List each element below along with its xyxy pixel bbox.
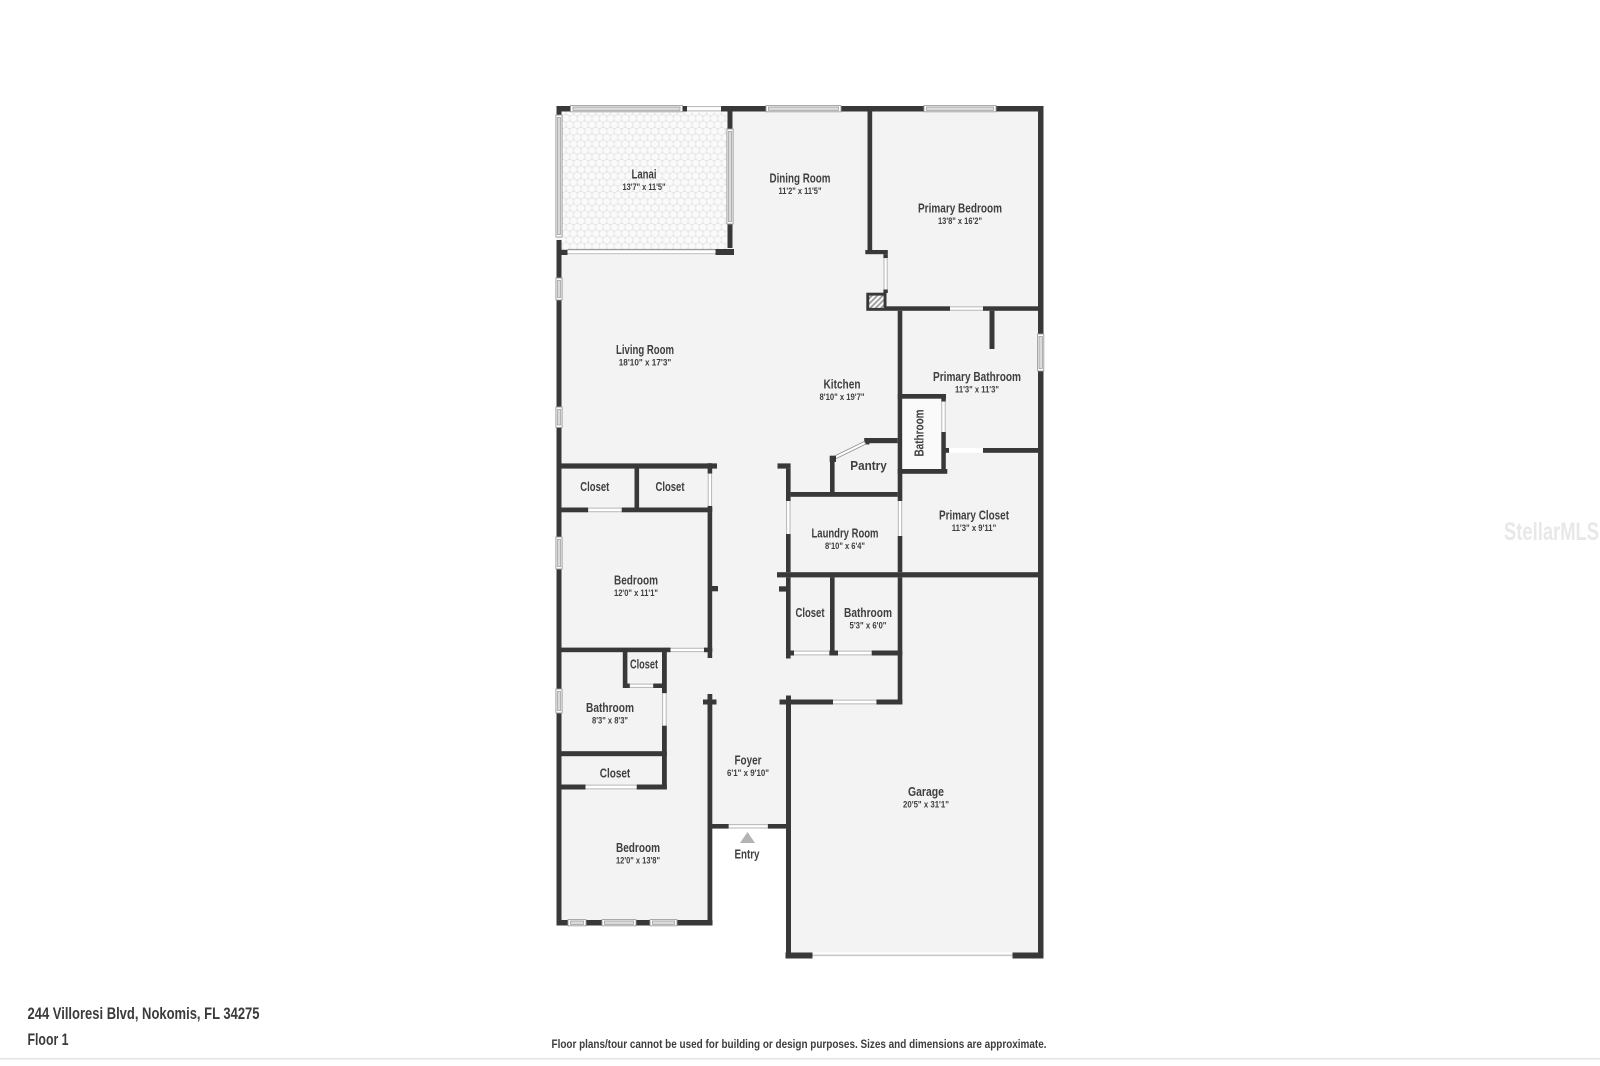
svg-text:12'0" x 11'1": 12'0" x 11'1" (614, 588, 658, 599)
svg-text:Primary Closet: Primary Closet (939, 509, 1010, 523)
svg-text:11'3" x 11'3": 11'3" x 11'3" (955, 385, 999, 396)
svg-text:Closet: Closet (656, 480, 686, 494)
svg-text:Garage: Garage (908, 785, 944, 799)
svg-text:Pantry: Pantry (850, 459, 887, 473)
svg-text:11'3" x 9'11": 11'3" x 9'11" (952, 523, 997, 534)
svg-text:Primary Bedroom: Primary Bedroom (918, 202, 1002, 216)
svg-text:Laundry Room: Laundry Room (812, 527, 879, 541)
svg-text:Closet: Closet (580, 480, 610, 494)
svg-text:Bedroom: Bedroom (614, 574, 658, 588)
svg-text:Bedroom: Bedroom (616, 841, 660, 855)
svg-text:Bathroom: Bathroom (586, 701, 634, 715)
svg-text:Entry: Entry (735, 848, 760, 862)
svg-text:6'1" x 9'10": 6'1" x 9'10" (727, 768, 769, 779)
svg-text:8'10" x 6'4": 8'10" x 6'4" (825, 541, 865, 552)
svg-text:Foyer: Foyer (735, 754, 762, 768)
svg-text:Floor 1: Floor 1 (28, 1031, 69, 1049)
svg-text:Bathroom: Bathroom (844, 606, 892, 620)
svg-text:StellarMLS: StellarMLS (1504, 518, 1599, 546)
svg-text:Dining Room: Dining Room (770, 172, 831, 186)
svg-text:13'7" x 11'5": 13'7" x 11'5" (623, 182, 666, 193)
svg-text:Closet: Closet (796, 606, 826, 620)
svg-text:13'8" x 16'2": 13'8" x 16'2" (938, 216, 982, 227)
svg-text:11'2" x 11'5": 11'2" x 11'5" (779, 186, 822, 197)
svg-text:5'3" x 6'0": 5'3" x 6'0" (850, 621, 887, 632)
svg-text:244 Villoresi Blvd, Nokomis, F: 244 Villoresi Blvd, Nokomis, FL 34275 (28, 1005, 260, 1023)
svg-text:8'3" x 8'3": 8'3" x 8'3" (592, 716, 628, 727)
svg-text:Bathroom: Bathroom (913, 410, 927, 457)
svg-text:Lanai: Lanai (632, 168, 657, 182)
svg-text:12'0" x 13'8": 12'0" x 13'8" (616, 856, 660, 867)
svg-text:Closet: Closet (600, 767, 631, 781)
svg-text:Floor plans/tour cannot be use: Floor plans/tour cannot be used for buil… (552, 1037, 1047, 1051)
svg-text:18'10" x 17'3": 18'10" x 17'3" (619, 358, 672, 369)
svg-text:8'10" x 19'7": 8'10" x 19'7" (820, 392, 865, 403)
svg-text:Primary Bathroom: Primary Bathroom (933, 370, 1021, 384)
svg-text:Kitchen: Kitchen (824, 378, 861, 392)
svg-text:Closet: Closet (630, 658, 659, 672)
svg-text:Living Room: Living Room (616, 343, 674, 357)
svg-text:20'5" x 31'1": 20'5" x 31'1" (903, 800, 949, 811)
